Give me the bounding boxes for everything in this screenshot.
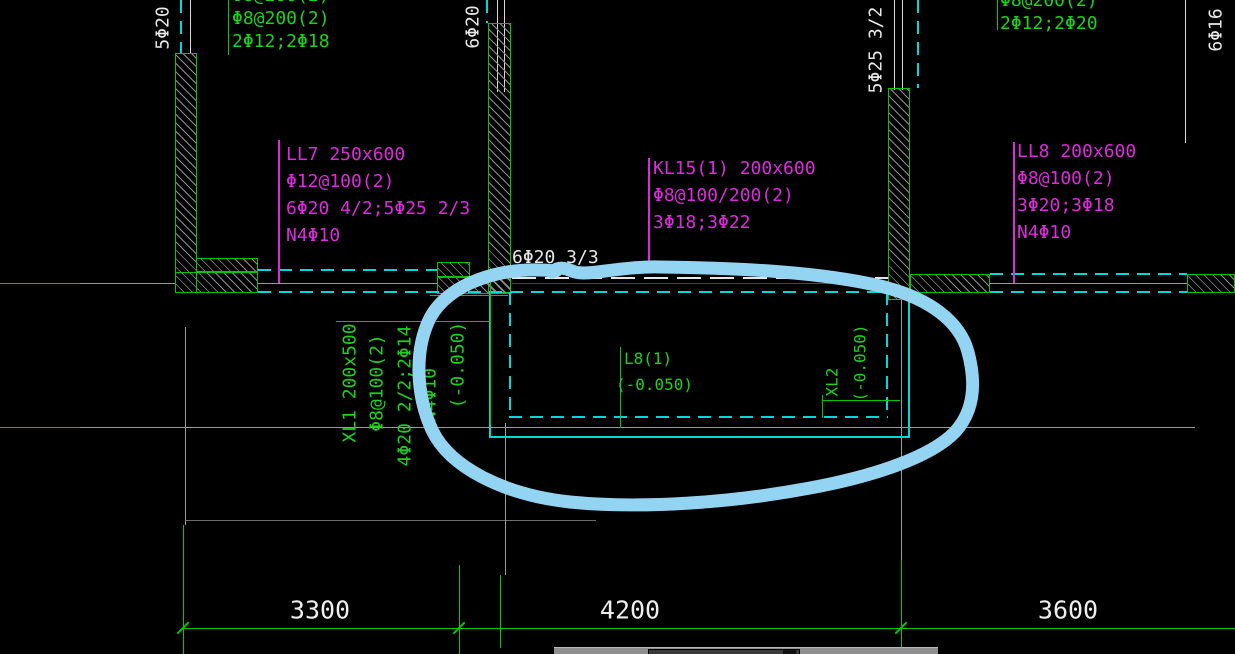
beam-label-line: Φ8@100(2)	[1017, 165, 1136, 192]
pit-outline-right	[908, 292, 910, 438]
wall-edge-white	[1185, 0, 1186, 143]
wall-edge-cyan-dash	[917, 0, 919, 88]
axis-line-h1c	[512, 283, 888, 284]
beam-label-line: KL15(1) 200x600	[653, 155, 816, 182]
pit-label-xl1-stirrup: Φ8@100(2)	[367, 334, 388, 432]
wall-band-right	[910, 274, 990, 293]
axis-line-h1d	[990, 283, 1187, 284]
wall-corner-step	[196, 258, 258, 272]
dimension-value: 4200	[600, 596, 660, 625]
pit-label-l8-elev: (-0.050)	[616, 372, 693, 398]
beam-label-line: LL7 250x600	[286, 141, 470, 168]
wall-rebar-note: Φ8@200(2)	[232, 7, 330, 30]
cad-canvas[interactable]: Φ8@200(2) Φ8@200(2) 2Φ12;2Φ18 Φ8@200(2) …	[0, 0, 1235, 654]
axis-line-h2-green	[0, 427, 80, 428]
beam-label-line: 3Φ18;3Φ22	[653, 209, 816, 236]
rebar-callout-vertical: 5Φ25 3/2	[866, 7, 887, 94]
wall-edge-white	[902, 0, 903, 90]
column-hatch-b	[488, 23, 511, 293]
wall-corner-band	[175, 272, 258, 293]
column-hatch-c	[888, 88, 910, 300]
beam-dash-cyan	[258, 291, 888, 293]
grid-line-v2	[505, 423, 506, 575]
axis-line-h1b	[258, 283, 437, 284]
pit-inner-dash-bottom	[509, 416, 888, 418]
rebar-callout-vertical: 6Φ20	[463, 5, 484, 48]
beam-label-line: N4Φ10	[1017, 219, 1136, 246]
ll7-leader-line	[278, 140, 280, 283]
pit-label-xl2-elev: (-0.050)	[851, 324, 870, 401]
column-hatch-a	[175, 53, 197, 293]
pit-inner-dash-left	[509, 292, 511, 417]
dimension-line	[183, 628, 1235, 629]
wall-band-far-right	[1187, 274, 1235, 293]
grid-line-v1-ext	[183, 525, 184, 654]
beam-label-line: 6Φ20 4/2;5Φ25 2/3	[286, 195, 470, 222]
rebar-callout-beam: 6Φ20 3/3	[512, 246, 599, 269]
wall-corner-step	[437, 262, 470, 277]
pit-inner-dash-right	[886, 292, 888, 417]
pit-outline-bottom	[489, 436, 910, 438]
beam-label-ll7: LL7 250x600 Φ12@100(2) 6Φ20 4/2;5Φ25 2/3…	[286, 141, 470, 249]
beam-dash-cyan	[990, 291, 1187, 293]
wall-rebar-note: 2Φ12;2Φ20	[1000, 12, 1098, 35]
wall-edge-white	[894, 0, 895, 90]
beam-label-line: N4Φ10	[286, 222, 470, 249]
beam-label-kl15: KL15(1) 200x600 Φ8@100/200(2) 3Φ18;3Φ22	[653, 155, 816, 236]
pit-label-xl1-elev: (-0.050)	[448, 322, 469, 409]
rebar-callout-vertical: 6Φ16	[1206, 8, 1227, 51]
axis-line-h2	[80, 427, 1195, 428]
wall-rebar-note-partial: Φ8@200(2)	[1000, 0, 1098, 12]
wall-edge-white	[190, 0, 191, 53]
beam-dash-white	[512, 277, 888, 279]
pit-label-xl1-bars: 4Φ20 2/2;2Φ14	[395, 326, 416, 467]
beam-label-line: Φ8@100/200(2)	[653, 182, 816, 209]
dimension-value: 3600	[1038, 596, 1098, 625]
wall-rebar-note-partial: Φ8@200(2)	[232, 0, 330, 7]
pit-label-xl1-side: N4Φ10	[420, 368, 441, 422]
grid-line-v3	[901, 300, 902, 560]
axis-line-h1-green	[0, 283, 80, 284]
beam-label-line: 3Φ20;3Φ18	[1017, 192, 1136, 219]
beam-dash-cyan	[990, 273, 1187, 275]
pit-label-l8: L8(1)	[624, 346, 672, 372]
rebar-callout-vertical: 5Φ20	[153, 6, 174, 49]
beam-label-ll8: LL8 200x600 Φ8@100(2) 3Φ20;3Φ18 N4Φ10	[1017, 138, 1136, 246]
beam-dash-cyan	[258, 269, 437, 271]
grid-line-v3-ext	[901, 560, 902, 648]
pit-label-xl2: XL2	[823, 368, 842, 397]
axis-line-h1	[80, 283, 175, 284]
xl1-edge-line	[430, 295, 508, 296]
wall-edge-cyan-dash	[486, 0, 488, 23]
kl15-leader-line	[648, 158, 650, 266]
background-window-button	[783, 650, 796, 654]
beam-label-line: LL8 200x600	[1017, 138, 1136, 165]
pit-label-xl1: XL1 200x500	[340, 323, 361, 442]
beam-label-line: Φ12@100(2)	[286, 168, 470, 195]
dimension-value: 3300	[290, 596, 350, 625]
grid-line-v2-ext	[500, 575, 501, 648]
wall-rebar-note: 2Φ12;2Φ18	[232, 30, 330, 53]
background-window-inner	[648, 649, 800, 654]
top-left-leader-line	[228, 0, 229, 55]
top-right-leader-line	[997, 0, 998, 30]
dim-extension-line	[459, 565, 460, 654]
grid-line-v1	[185, 327, 186, 525]
xl2-leader-line	[822, 395, 823, 418]
ll8-leader-line	[1013, 142, 1015, 283]
wall-edge-cyan-dash	[180, 0, 182, 53]
axis-line-h3	[186, 520, 596, 521]
